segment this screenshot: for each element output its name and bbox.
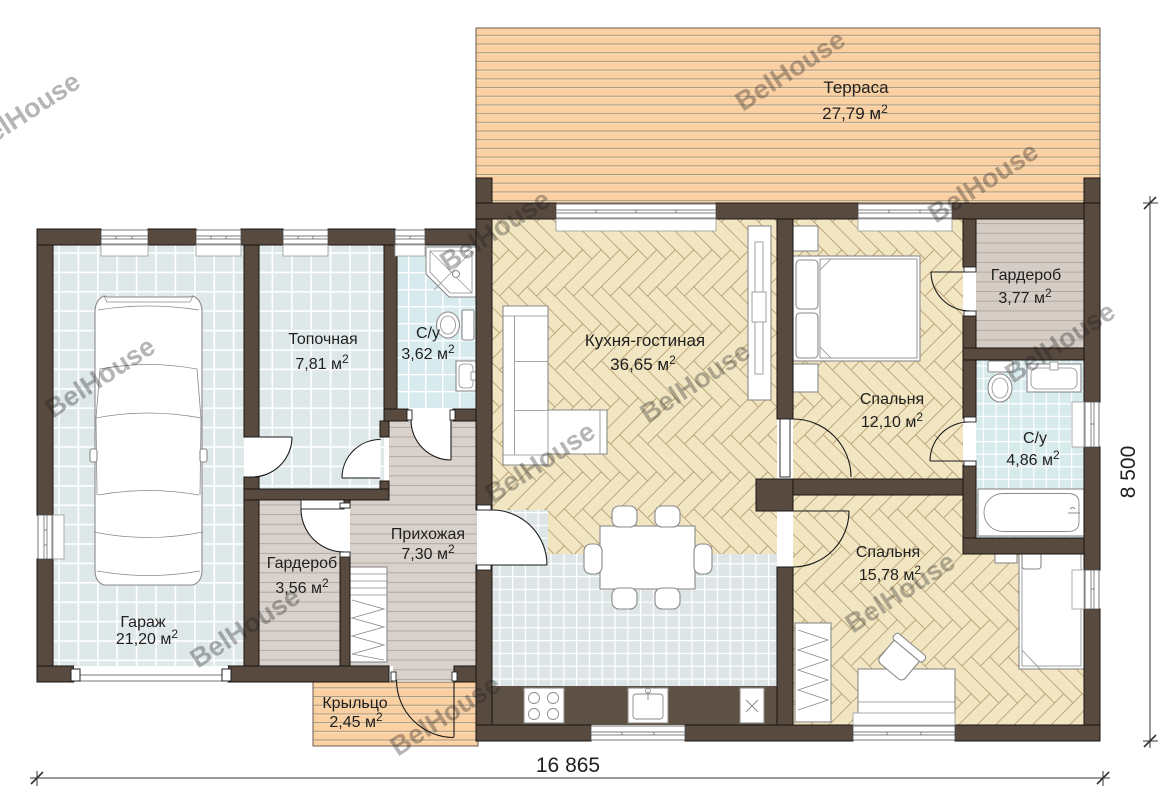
svg-text:Терраса: Терраса <box>823 78 889 97</box>
svg-text:4,86 м2: 4,86 м2 <box>1006 448 1060 469</box>
svg-text:С/у: С/у <box>1023 430 1047 447</box>
svg-text:12,10 м2: 12,10 м2 <box>861 410 923 431</box>
svg-text:С/у: С/у <box>416 325 440 342</box>
svg-text:3,77 м2: 3,77 м2 <box>998 286 1052 307</box>
svg-text:Спальня: Спальня <box>860 391 924 408</box>
svg-text:8 500: 8 500 <box>1117 446 1140 499</box>
svg-text:2,45 м2: 2,45 м2 <box>329 710 383 731</box>
svg-text:Прихожая: Прихожая <box>391 526 465 543</box>
svg-text:Топочная: Топочная <box>288 331 357 348</box>
svg-text:3,56 м2: 3,56 м2 <box>275 576 329 597</box>
svg-text:Гараж: Гараж <box>120 614 165 631</box>
svg-text:Кухня-гостиная: Кухня-гостиная <box>585 331 705 350</box>
svg-text:Спальня: Спальня <box>856 544 920 561</box>
svg-text:3,62 м2: 3,62 м2 <box>401 342 455 363</box>
svg-text:Гардероб: Гардероб <box>267 555 337 572</box>
svg-text:36,65 м2: 36,65 м2 <box>610 353 676 374</box>
svg-text:15,78 м2: 15,78 м2 <box>859 563 921 584</box>
svg-text:21,20 м2: 21,20 м2 <box>116 627 178 648</box>
svg-text:16 865: 16 865 <box>536 754 600 777</box>
svg-text:27,79 м2: 27,79 м2 <box>822 102 888 123</box>
svg-text:7,81 м2: 7,81 м2 <box>295 352 349 373</box>
svg-text:7,30 м2: 7,30 м2 <box>401 542 455 563</box>
svg-text:Гардероб: Гардероб <box>991 267 1061 284</box>
